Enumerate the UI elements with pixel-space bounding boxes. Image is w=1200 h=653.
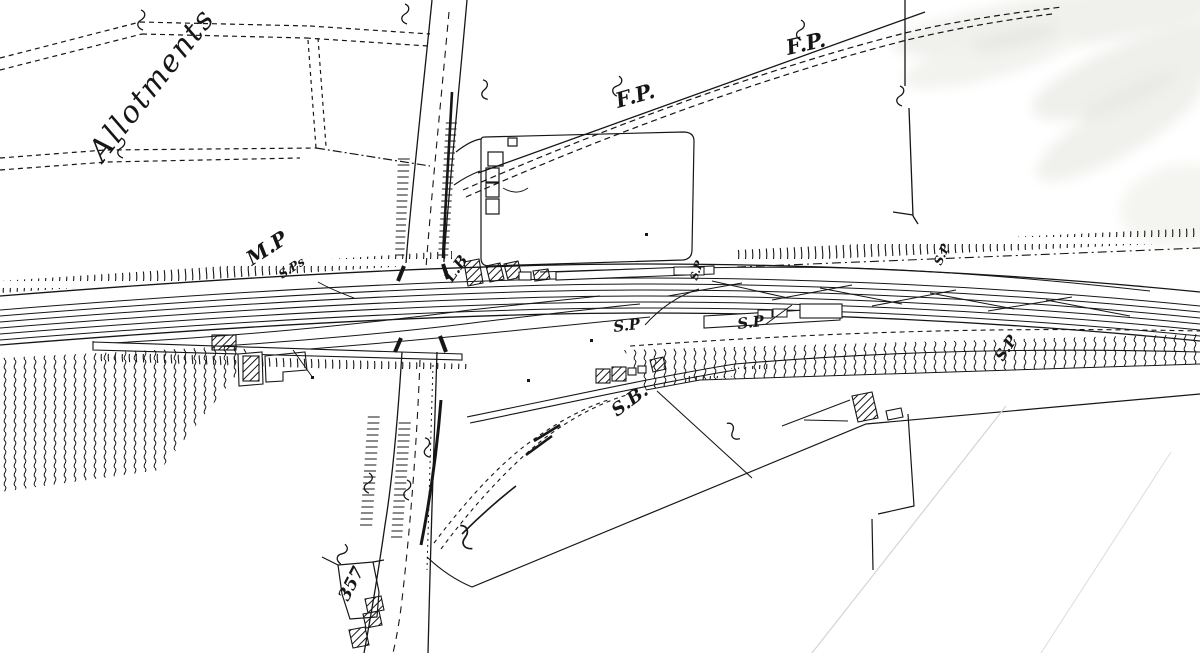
- station-yard: [454, 79, 694, 266]
- bridge-parapet: [440, 336, 446, 352]
- field-boundary-line: [427, 394, 1200, 587]
- building-hatched: [533, 269, 550, 281]
- building: [519, 272, 531, 280]
- south-fields: [427, 392, 1200, 653]
- railway: [0, 228, 1200, 492]
- os-railway-map: Allotments F.P. F.P.: [0, 0, 1200, 653]
- faint-boundary: [1041, 452, 1171, 653]
- boundary-brace-icon: [456, 524, 474, 551]
- building-hatched: [212, 335, 236, 350]
- station-building: [488, 152, 503, 166]
- label-milepost-sub: S.Ps: [276, 254, 307, 281]
- field-boundary-line: [878, 414, 914, 514]
- boundary-brace-icon: [724, 421, 741, 441]
- survey-dot: [645, 233, 648, 236]
- photocopy-artifact: [888, 0, 1200, 255]
- road: [360, 0, 467, 653]
- label-parcel-number: 357: [335, 563, 369, 604]
- building-hatched: [464, 259, 483, 286]
- boundary-brace-icon: [480, 79, 490, 100]
- allotments-area: [0, 10, 430, 170]
- label-footpath-west: F.P.: [612, 78, 658, 113]
- boundary-brace-icon: [138, 10, 145, 30]
- station-building: [800, 304, 842, 318]
- field-boundary-line: [478, 12, 925, 173]
- building-hatched: [363, 611, 382, 628]
- station-building: [486, 199, 499, 214]
- building-hatched: [650, 357, 666, 372]
- building: [638, 366, 646, 373]
- label-footpath-east: F.P.: [783, 27, 828, 61]
- rail-line: [0, 296, 1200, 328]
- embankment-hatch: [0, 346, 255, 492]
- building: [886, 408, 903, 420]
- map-drawing: Allotments F.P. F.P.: [0, 0, 1200, 653]
- building-hatched: [365, 596, 384, 613]
- embankment-hatch: [624, 334, 1200, 390]
- building: [508, 138, 517, 146]
- survey-dot: [527, 379, 530, 382]
- road-slope-hatch: [360, 413, 380, 528]
- boundary-brace-icon: [897, 86, 904, 106]
- label-allotments: Allotments: [80, 1, 223, 170]
- cutting-hatch-band: [0, 251, 452, 293]
- building-hatched: [852, 392, 878, 422]
- field-boundary-line: [872, 519, 873, 570]
- survey-dot: [311, 376, 314, 379]
- signal-box: [596, 369, 610, 383]
- label-signal-post-mid-west: S.P: [612, 315, 642, 336]
- bridge-parapet: [398, 266, 404, 281]
- label-signal-post-mid-east: S.P: [736, 312, 766, 333]
- building-hatched: [243, 356, 259, 381]
- boundary-brace-icon: [402, 4, 409, 24]
- rail-line: [0, 284, 1200, 316]
- road-edge: [406, 0, 432, 263]
- building-hatched: [612, 367, 626, 381]
- survey-dot: [590, 339, 593, 342]
- field-boundary-line: [657, 391, 752, 478]
- bridge-parapet: [395, 338, 401, 352]
- boundary-brace-icon: [336, 543, 349, 564]
- faint-boundary: [812, 406, 1006, 653]
- building: [628, 368, 636, 375]
- building-hatched: [349, 627, 369, 648]
- station-building: [486, 183, 499, 197]
